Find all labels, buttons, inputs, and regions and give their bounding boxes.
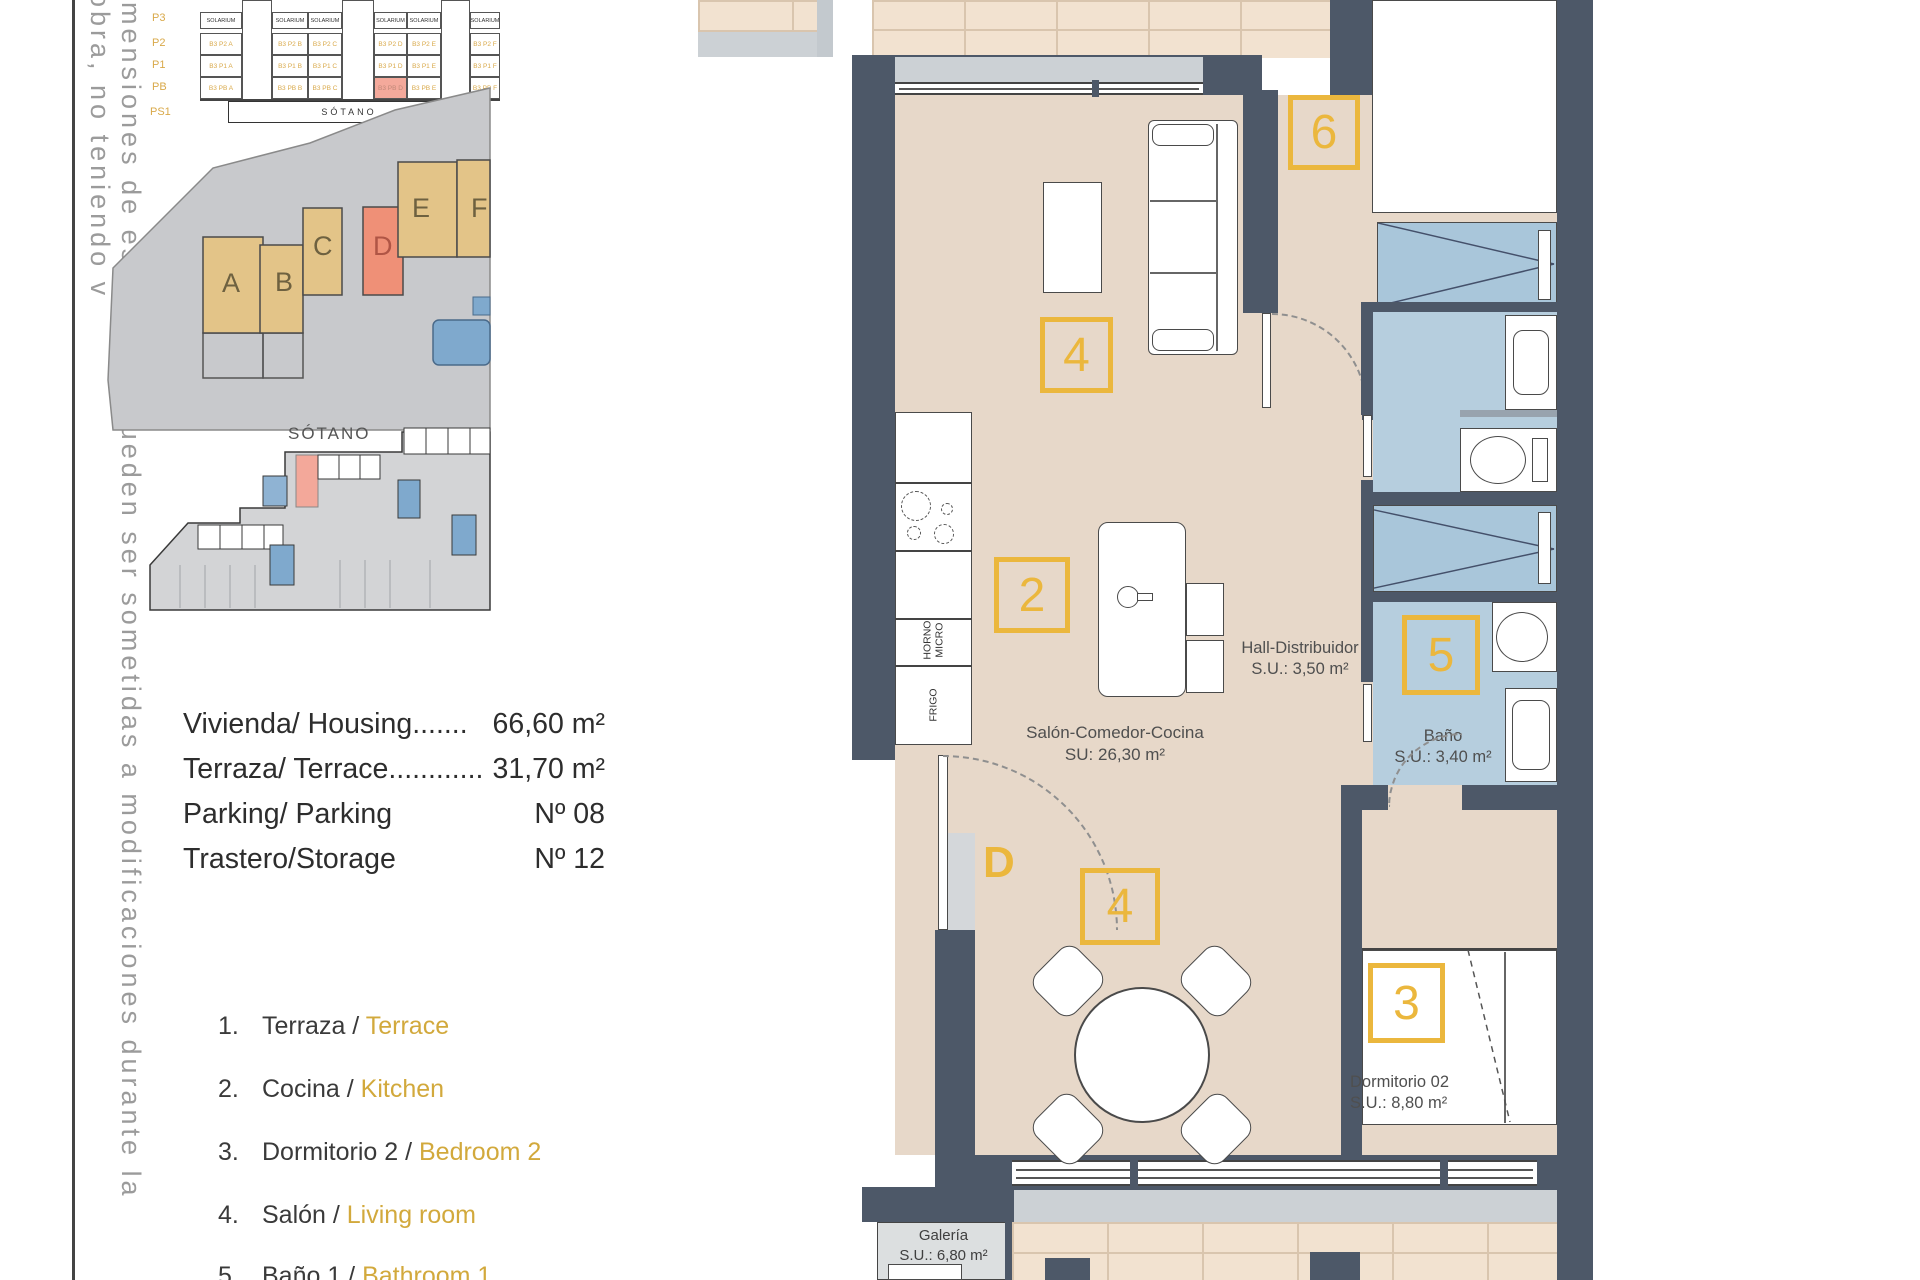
wall-segment xyxy=(1330,0,1372,95)
cooktop-burner xyxy=(901,491,931,521)
entry-door-letter: D xyxy=(983,838,1015,888)
door-leaf xyxy=(1363,684,1372,742)
toilet-icon xyxy=(1470,436,1526,484)
wardrobe-handle xyxy=(1538,512,1551,584)
hall-area: S.U.: 3,50 m² xyxy=(1180,659,1420,680)
summary-value: 66,60 m² xyxy=(493,708,605,741)
hall-label: Hall-Distribuidor S.U.: 3,50 m² xyxy=(1180,638,1420,681)
summary-value: Nº 12 xyxy=(534,843,605,876)
interior-wall xyxy=(1361,302,1373,415)
neighbor-terrace xyxy=(698,0,817,32)
window-mullion xyxy=(1130,1160,1138,1186)
cooktop-burner xyxy=(941,503,953,515)
solarium-header: SOLARIUM xyxy=(272,12,308,29)
solarium-header: SOLARIUM xyxy=(470,12,500,29)
horno-text: HORNO xyxy=(921,621,933,660)
south-window xyxy=(1012,1160,1537,1186)
summary-label: Vivienda/ Housing....... xyxy=(183,708,468,741)
floor-label-p3: P3 xyxy=(152,12,165,24)
sofa xyxy=(1148,120,1238,355)
legend-es: Salón / xyxy=(262,1201,347,1229)
island-stool xyxy=(1186,583,1224,636)
galeria-label: Galería S.U.: 6,80 m² xyxy=(877,1226,1010,1265)
unit-cell: B3 P2 C xyxy=(308,33,342,55)
galeria-area: S.U.: 6,80 m² xyxy=(877,1246,1010,1266)
legend-en: Living room xyxy=(347,1201,476,1229)
solarium-header: SOLARIUM xyxy=(407,12,441,29)
faucet-spout xyxy=(1137,593,1153,601)
cooktop-burner xyxy=(907,526,921,540)
bed-double xyxy=(1372,0,1557,213)
living-name: Salón-Comedor-Cocina xyxy=(990,722,1240,744)
unit-cell: B3 P2 F xyxy=(470,33,500,55)
bath-shelf xyxy=(1460,410,1557,417)
legend-number: 3. xyxy=(218,1138,262,1167)
building-e-label: E xyxy=(412,193,430,223)
pool xyxy=(433,320,490,365)
dining-table xyxy=(1074,987,1210,1123)
interior-wall xyxy=(1361,592,1557,602)
floor-plan-sheet: imensiones de este plano pueden ser some… xyxy=(0,0,1920,1280)
unit-cell: B3 P2 A xyxy=(200,33,242,55)
unit-cell: B3 P1 C xyxy=(308,55,342,77)
sink-basin xyxy=(1513,330,1549,395)
unit-cell: B3 P2 D xyxy=(374,33,407,55)
basement-blue-cell xyxy=(270,545,294,585)
room-marker-4: 4 xyxy=(1040,317,1113,393)
window-mullion xyxy=(1440,1160,1448,1186)
unit-cell: B3 P2 B xyxy=(272,33,308,55)
frigo-text: FRIGO xyxy=(927,688,939,721)
unit-cell: B3 P1 E xyxy=(407,55,441,77)
solarium-header: SOLARIUM xyxy=(374,12,407,29)
summary-row: Parking/ Parking Nº 08 xyxy=(183,792,605,837)
room-marker-3: 3 xyxy=(1368,963,1445,1043)
living-label: Salón-Comedor-Cocina SU: 26,30 m² xyxy=(990,722,1240,766)
north-window xyxy=(895,82,1203,95)
unit-cell: B3 P2 E xyxy=(407,33,441,55)
legend-item-cocina: 2. Cocina / Kitchen xyxy=(218,1075,444,1104)
oven-micro-label: HORNO MICRO xyxy=(893,616,974,665)
floor-label-p1: P1 xyxy=(152,59,165,71)
fridge-label: FRIGO xyxy=(893,665,974,745)
bedroom2-area: S.U.: 8,80 m² xyxy=(1350,1093,1490,1114)
basement-highlight-strip xyxy=(296,455,318,507)
summary-label: Parking/ Parking xyxy=(183,798,392,831)
basement-stalls xyxy=(318,455,380,479)
summary-value: Nº 08 xyxy=(534,798,605,831)
terrace-top xyxy=(872,0,1330,58)
summary-label: Terraza/ Terrace............ xyxy=(183,753,483,786)
legend-en: Terrace xyxy=(366,1012,449,1040)
sofa-back-line xyxy=(1216,124,1218,351)
south-wall-left xyxy=(862,1187,1012,1222)
cooktop-burner xyxy=(934,524,954,544)
toilet-tank xyxy=(1532,438,1548,482)
counter-divider xyxy=(895,550,972,552)
east-wall xyxy=(1557,0,1593,1280)
basement-stair xyxy=(263,476,287,506)
window-mullion xyxy=(1092,80,1099,97)
north-window-sill xyxy=(895,57,1203,82)
legend-number: 4. xyxy=(218,1201,262,1230)
room-marker-4-dining: 4 xyxy=(1080,868,1160,945)
sofa-seat-line xyxy=(1150,272,1216,274)
building-b-label: B xyxy=(275,267,293,297)
summary-row: Vivienda/ Housing....... 66,60 m² xyxy=(183,702,605,747)
legend-es: Terraza / xyxy=(262,1012,366,1040)
summary-block: Vivienda/ Housing....... 66,60 m² Terraz… xyxy=(183,702,605,882)
hall-name: Hall-Distribuidor xyxy=(1180,638,1420,659)
unit-cell: B3 P1 D xyxy=(374,55,407,77)
sofa-armrest xyxy=(1152,124,1214,146)
basement-plan xyxy=(140,420,495,615)
living-area: SU: 26,30 m² xyxy=(990,744,1240,766)
summary-label: Trastero/Storage xyxy=(183,843,396,876)
building-f-label: F xyxy=(471,193,488,223)
basement-blue-cell xyxy=(452,515,476,555)
interior-wall xyxy=(1462,785,1557,810)
west-wall-lower xyxy=(935,930,975,1187)
summary-row: Terraza/ Terrace............ 31,70 m² xyxy=(183,747,605,792)
wall-stub xyxy=(1045,1258,1090,1280)
legend-es: Dormitorio 2 / xyxy=(262,1138,419,1166)
legend-es: Cocina / xyxy=(262,1075,361,1103)
legend-item-bano: 5. Baño 1 / Bathroom 1 xyxy=(218,1262,491,1280)
solarium-header: SOLARIUM xyxy=(200,12,242,29)
wardrobe xyxy=(1377,222,1557,307)
room-marker-6: 6 xyxy=(1288,95,1360,170)
terrace-bottom xyxy=(1012,1222,1557,1280)
galeria-name: Galería xyxy=(877,1226,1010,1246)
unit-cell: B3 P1 F xyxy=(470,55,500,77)
unit-cell: B3 P1 A xyxy=(200,55,242,77)
basement-blue-cell xyxy=(398,480,420,518)
legend-en: Bedroom 2 xyxy=(419,1138,541,1166)
legend-item-salon: 4. Salón / Living room xyxy=(218,1201,476,1230)
interior-wall xyxy=(1243,90,1278,313)
bedroom2-name: Dormitorio 02 xyxy=(1350,1072,1490,1093)
toilet-icon xyxy=(1496,612,1548,662)
legend-number: 1. xyxy=(218,1012,262,1041)
washing-machine xyxy=(888,1264,962,1280)
sheet-border-line xyxy=(72,0,75,1280)
building-d-label: D xyxy=(373,231,393,261)
legend-en: Bathroom 1 xyxy=(362,1262,491,1280)
legend-number: 5. xyxy=(218,1262,262,1280)
interior-wall xyxy=(1361,492,1557,505)
kitchen-island xyxy=(1098,522,1186,697)
unit-cell: B3 P1 B xyxy=(272,55,308,77)
floor-label-p2: P2 xyxy=(152,37,165,49)
door-leaf xyxy=(1262,313,1271,408)
tv-cabinet xyxy=(1043,182,1102,293)
wardrobe-handle xyxy=(1538,230,1551,300)
wardrobe xyxy=(1373,505,1557,592)
party-wall xyxy=(817,0,833,57)
legend-item-dormitorio: 3. Dormitorio 2 / Bedroom 2 xyxy=(218,1138,541,1167)
south-window-sill xyxy=(1012,1190,1557,1222)
building-c-label: C xyxy=(313,231,333,261)
faucet-icon xyxy=(1117,586,1139,608)
sofa-seat-line xyxy=(1150,200,1216,202)
legend-number: 2. xyxy=(218,1075,262,1104)
neighbor-terrace-sill xyxy=(698,32,817,57)
bedroom2-label: Dormitorio 02 S.U.: 8,80 m² xyxy=(1350,1072,1490,1115)
micro-text: MICRO xyxy=(934,623,946,658)
sofa-armrest xyxy=(1152,329,1214,351)
room-marker-2: 2 xyxy=(994,557,1070,633)
legend-item-terraza: 1. Terraza / Terrace xyxy=(218,1012,449,1041)
solarium-header: SOLARIUM xyxy=(308,12,342,29)
west-wall xyxy=(852,55,895,760)
legend-en: Kitchen xyxy=(361,1075,444,1103)
summary-row: Trastero/Storage Nº 12 xyxy=(183,837,605,882)
interior-wall xyxy=(1361,302,1557,312)
building-a-label: A xyxy=(222,268,240,298)
sink-basin xyxy=(1512,700,1550,770)
counter-divider xyxy=(895,482,972,484)
wall-stub xyxy=(1310,1252,1360,1280)
door-leaf xyxy=(1363,415,1372,477)
summary-value: 31,70 m² xyxy=(493,753,605,786)
legend-es: Baño 1 / xyxy=(262,1262,362,1280)
basement-stalls xyxy=(404,428,490,454)
pool-small xyxy=(473,297,490,315)
